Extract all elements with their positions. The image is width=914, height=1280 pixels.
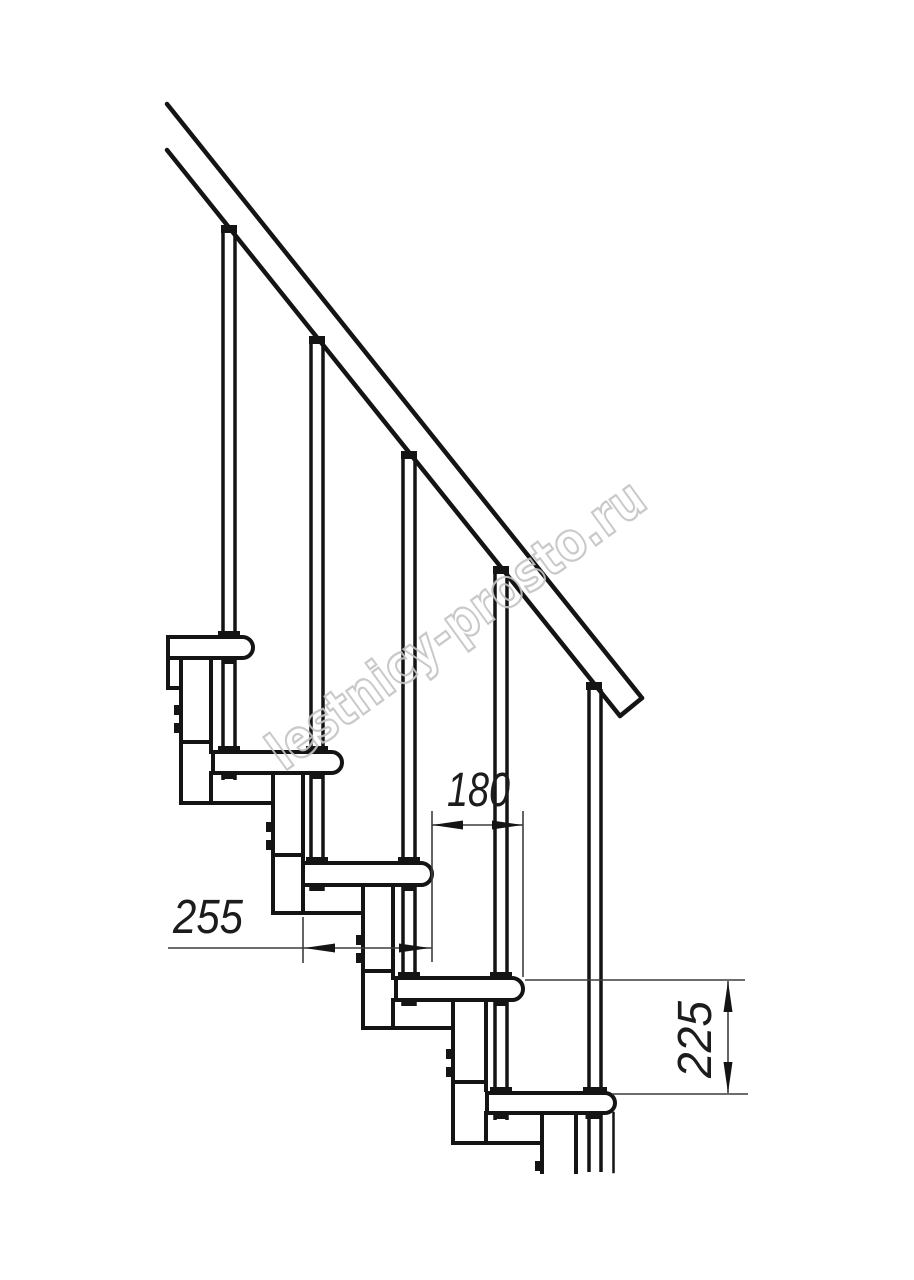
- nut: [494, 1111, 509, 1119]
- collar: [306, 857, 328, 864]
- tread: [396, 978, 523, 1000]
- support-column: [273, 773, 363, 913]
- baluster: [403, 458, 415, 1006]
- collar: [490, 972, 512, 979]
- baluster: [495, 573, 507, 1120]
- support-column: [363, 885, 453, 1028]
- collar: [490, 1087, 512, 1094]
- baluster: [223, 232, 235, 780]
- support-column: [453, 1000, 542, 1143]
- arrowhead-up: [724, 981, 733, 1012]
- collar: [218, 631, 240, 638]
- balusters: [223, 232, 601, 1172]
- nut: [310, 883, 325, 891]
- collar: [398, 857, 420, 864]
- baluster: [311, 343, 323, 891]
- nut: [494, 998, 509, 1006]
- support-column: [542, 1113, 614, 1172]
- dimension-label-going: 180: [447, 764, 510, 817]
- nut: [586, 1111, 601, 1119]
- staircase-drawing-canvas: 180 255 225 lestnicy-prosto.ru: [0, 0, 914, 1280]
- arrowhead-left: [432, 821, 463, 830]
- tread: [168, 637, 253, 658]
- collar: [583, 1087, 607, 1094]
- rail-cap: [401, 451, 417, 459]
- nut: [402, 998, 417, 1006]
- dimension-180: 180: [432, 764, 523, 977]
- staircase-dimension-drawing: 180 255 225 lestnicy-prosto.ru: [0, 0, 914, 1280]
- nut: [310, 771, 325, 779]
- nut: [402, 883, 417, 891]
- rail-cap: [586, 682, 602, 690]
- tread: [487, 1093, 615, 1113]
- rail-cap: [309, 336, 325, 344]
- dimension-label-depth: 255: [172, 891, 243, 944]
- collar: [398, 972, 420, 979]
- dimension-label-rise: 225: [669, 1001, 722, 1079]
- support-column: [168, 658, 273, 803]
- nut: [222, 656, 237, 664]
- collar: [218, 746, 240, 753]
- rail-cap: [221, 225, 237, 233]
- dimension-225: 225: [525, 980, 748, 1094]
- nut: [222, 771, 237, 779]
- arrowhead-down: [724, 1062, 733, 1093]
- tread: [303, 863, 432, 885]
- arrowhead-left: [304, 944, 335, 953]
